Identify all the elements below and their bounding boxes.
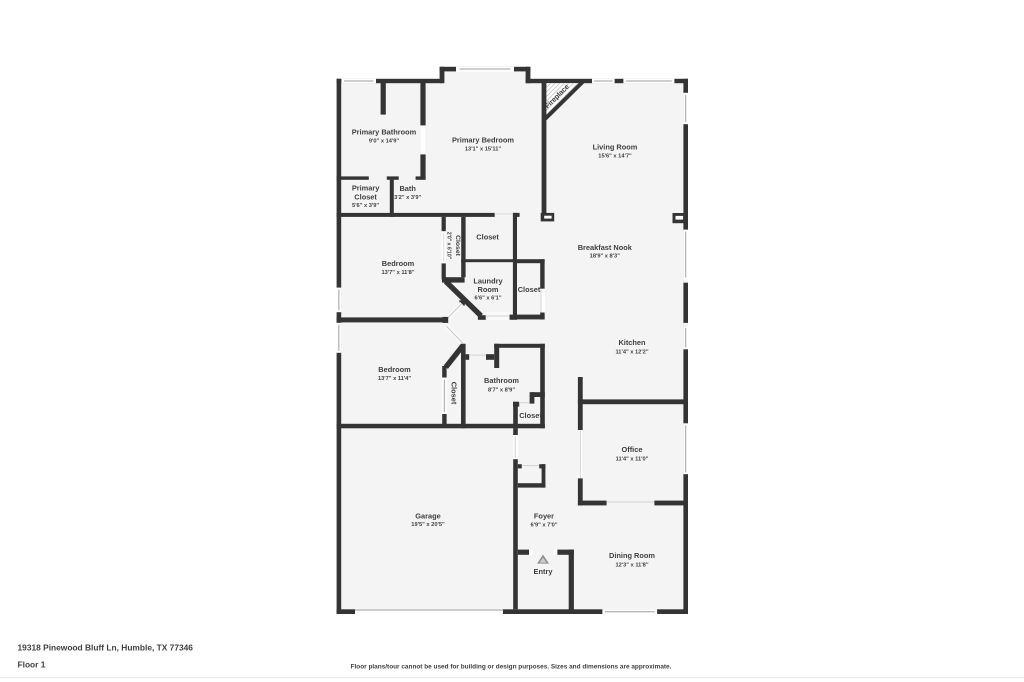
- svg-text:19318 Pinewood Bluff Ln, Humbl: 19318 Pinewood Bluff Ln, Humble, TX 7734…: [18, 643, 194, 653]
- svg-text:9'0" x 14'9": 9'0" x 14'9": [369, 139, 400, 145]
- svg-text:Breakfast Nook: Breakfast Nook: [578, 243, 633, 252]
- svg-text:Office: Office: [622, 445, 643, 454]
- svg-text:3'2" x 3'9": 3'2" x 3'9": [394, 195, 421, 201]
- svg-text:8'7" x 8'9": 8'7" x 8'9": [488, 388, 515, 394]
- svg-text:Closet: Closet: [450, 382, 459, 405]
- svg-text:13'7" x 11'4": 13'7" x 11'4": [378, 376, 411, 382]
- svg-text:13'1" x 15'11": 13'1" x 15'11": [465, 147, 502, 153]
- svg-text:Primary Bathroom: Primary Bathroom: [352, 127, 417, 136]
- svg-text:5'6" x 3'9": 5'6" x 3'9": [352, 203, 379, 209]
- svg-text:Bedroom: Bedroom: [382, 259, 415, 268]
- svg-text:Bedroom: Bedroom: [378, 365, 411, 374]
- svg-text:18'9" x 8'3": 18'9" x 8'3": [590, 254, 621, 260]
- svg-text:Entry: Entry: [534, 567, 554, 576]
- svg-text:Living Room: Living Room: [593, 142, 638, 151]
- svg-text:Closet: Closet: [476, 233, 499, 242]
- svg-text:Floor plans/tour cannot be use: Floor plans/tour cannot be used for buil…: [351, 663, 672, 670]
- svg-text:Bath: Bath: [399, 184, 416, 193]
- svg-text:12'3" x 11'8": 12'3" x 11'8": [615, 562, 648, 568]
- svg-text:Room: Room: [478, 285, 499, 294]
- svg-text:19'5" x 20'5": 19'5" x 20'5": [411, 522, 445, 528]
- svg-text:6'6" x 6'1": 6'6" x 6'1": [474, 296, 501, 302]
- svg-text:Closet: Closet: [454, 235, 461, 257]
- svg-text:Foyer: Foyer: [534, 511, 554, 520]
- svg-text:15'6" x 14'7": 15'6" x 14'7": [598, 154, 632, 160]
- svg-text:Kitchen: Kitchen: [618, 338, 646, 347]
- svg-text:Floor 1: Floor 1: [18, 660, 46, 670]
- svg-text:13'7" x 11'8": 13'7" x 11'8": [381, 270, 414, 276]
- svg-text:11'4" x 11'0": 11'4" x 11'0": [616, 457, 649, 463]
- svg-text:Bathroom: Bathroom: [484, 376, 519, 385]
- svg-text:Closet: Closet: [518, 285, 541, 294]
- svg-text:11'4" x 12'2": 11'4" x 12'2": [615, 350, 648, 356]
- svg-text:Primary: Primary: [352, 183, 380, 192]
- svg-text:2'0" x 6'10": 2'0" x 6'10": [445, 232, 451, 260]
- svg-text:Closet: Closet: [354, 192, 377, 201]
- svg-text:Garage: Garage: [415, 511, 440, 520]
- svg-text:Closet: Closet: [519, 411, 542, 420]
- svg-text:Dining Room: Dining Room: [609, 551, 655, 560]
- svg-text:6'9" x 7'0": 6'9" x 7'0": [530, 523, 557, 529]
- svg-text:Primary Bedroom: Primary Bedroom: [452, 135, 514, 144]
